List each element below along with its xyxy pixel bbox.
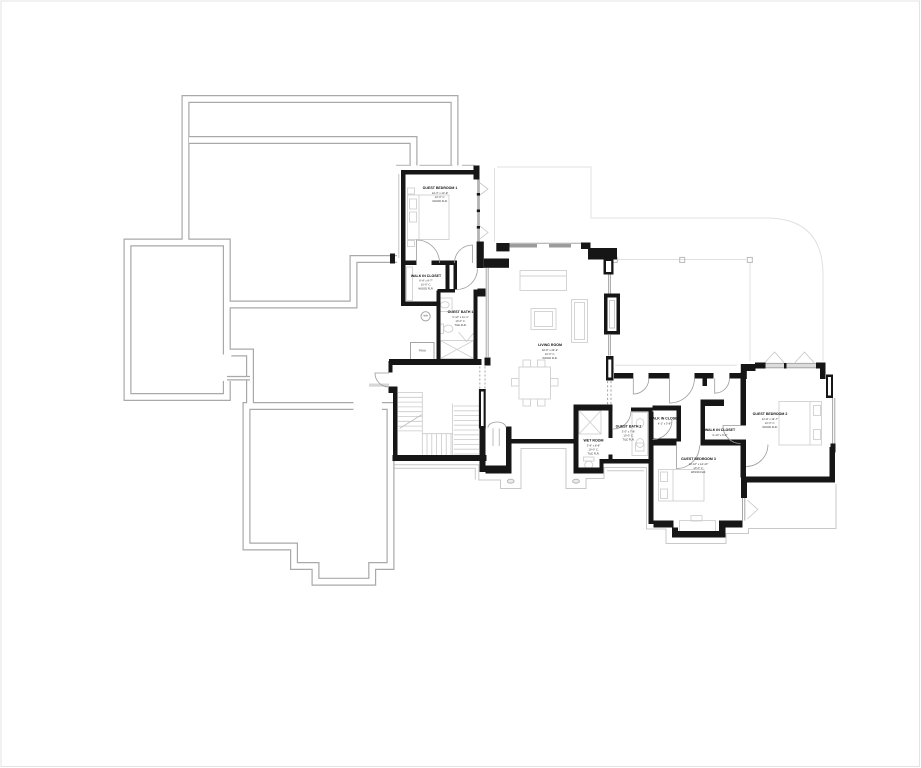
svg-text:GUEST BATH 1: GUEST BATH 1: [448, 310, 474, 314]
svg-text:10'-0" C.: 10'-0" C.: [455, 320, 466, 323]
svg-text:WOOD FLR.: WOOD FLR.: [691, 471, 706, 474]
svg-text:10'-0" C.: 10'-0" C.: [623, 434, 634, 437]
svg-text:LIVING ROOM: LIVING ROOM: [538, 343, 562, 347]
svg-text:14'-3" x 13'-8": 14'-3" x 13'-8": [432, 192, 449, 195]
svg-text:WALK IN CLOSET: WALK IN CLOSET: [705, 428, 736, 432]
svg-text:WALK IN CLOSET: WALK IN CLOSET: [649, 417, 680, 421]
svg-text:18'-9" x 24'-4": 18'-9" x 24'-4": [542, 349, 559, 352]
svg-text:10'-0" C.: 10'-0" C.: [588, 448, 599, 451]
svg-text:GUEST BEDROOM 1: GUEST BEDROOM 1: [423, 186, 458, 190]
svg-text:6'-4" x 9'-7": 6'-4" x 9'-7": [419, 280, 433, 283]
svg-text:12'-8" x 14'-7": 12'-8" x 14'-7": [762, 418, 779, 421]
svg-text:WALK IN CLOSET: WALK IN CLOSET: [411, 274, 442, 278]
svg-text:WOOD FLR.: WOOD FLR.: [418, 288, 433, 291]
svg-text:GUEST BEDROOM 3: GUEST BEDROOM 3: [681, 457, 716, 461]
svg-text:10'-0" C.: 10'-0" C.: [435, 196, 446, 199]
svg-text:TILE FLR.: TILE FLR.: [622, 438, 634, 441]
svg-text:10'-0" C.: 10'-0" C.: [421, 284, 432, 287]
svg-text:10'-0" C.: 10'-0" C.: [545, 353, 556, 356]
svg-text:12'-10" x 14'-10": 12'-10" x 14'-10": [689, 463, 709, 466]
svg-text:10'-0" C.: 10'-0" C.: [765, 422, 776, 425]
svg-text:WOOD FLR.: WOOD FLR.: [432, 200, 447, 203]
svg-text:WOOD FLR.: WOOD FLR.: [762, 426, 777, 429]
svg-text:TILE FLR.: TILE FLR.: [587, 452, 599, 455]
svg-text:5'-5" x 7'-8": 5'-5" x 7'-8": [622, 430, 636, 433]
svg-text:TILE FLR.: TILE FLR.: [454, 324, 466, 327]
svg-text:WET ROOM: WET ROOM: [584, 439, 604, 443]
svg-text:6'-10" x 6'-9": 6'-10" x 6'-9": [712, 434, 727, 437]
svg-text:5'-9" x 8'-8": 5'-9" x 8'-8": [587, 444, 601, 447]
svg-text:5'-10" x 11'-1": 5'-10" x 11'-1": [452, 316, 468, 319]
svg-text:GUEST BATH 2: GUEST BATH 2: [616, 425, 642, 429]
svg-text:GUEST BEDROOM 2: GUEST BEDROOM 2: [753, 412, 788, 416]
svg-text:4'-1" x 5'-8": 4'-1" x 5'-8": [658, 422, 672, 425]
svg-text:WOOD FLR.: WOOD FLR.: [542, 357, 557, 360]
svg-text:WH: WH: [424, 315, 428, 318]
svg-text:FRDG: FRDG: [419, 349, 426, 352]
svg-text:10'-0" C.: 10'-0" C.: [693, 467, 704, 470]
